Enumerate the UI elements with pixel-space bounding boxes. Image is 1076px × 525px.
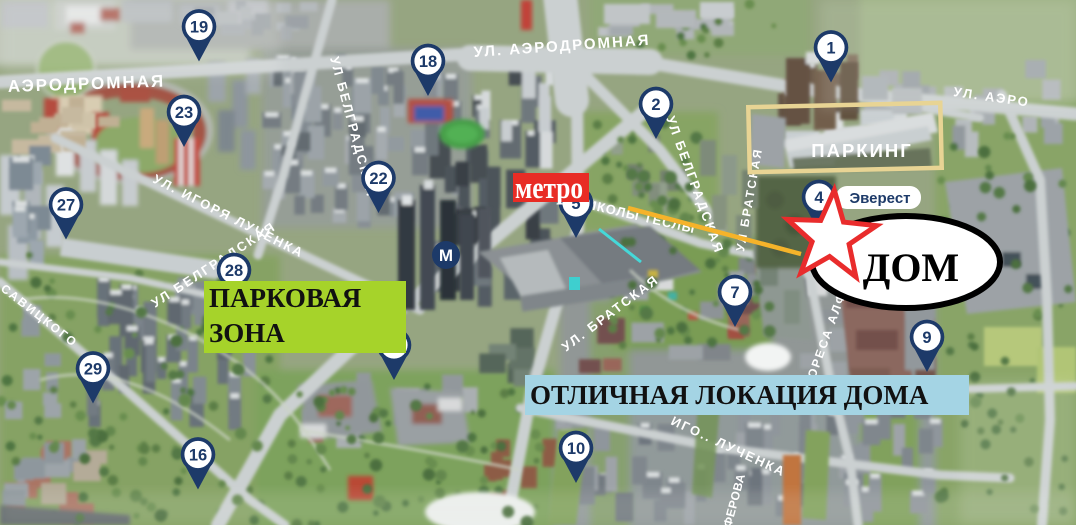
svg-text:10: 10 bbox=[567, 440, 585, 458]
svg-text:ПАРКИНГ: ПАРКИНГ bbox=[811, 140, 912, 161]
svg-text:23: 23 bbox=[175, 104, 193, 122]
svg-text:4: 4 bbox=[814, 189, 824, 207]
svg-text:ОТЛИЧНАЯ ЛОКАЦИЯ ДОМА: ОТЛИЧНАЯ ЛОКАЦИЯ ДОМА bbox=[530, 380, 929, 410]
svg-text:1: 1 bbox=[826, 39, 835, 57]
svg-text:19: 19 bbox=[190, 18, 208, 36]
svg-text:9: 9 bbox=[922, 329, 931, 347]
svg-text:М: М bbox=[439, 246, 453, 265]
svg-text:7: 7 bbox=[730, 284, 739, 302]
svg-text:16: 16 bbox=[189, 446, 207, 464]
svg-text:Эверест: Эверест bbox=[849, 190, 910, 207]
svg-text:22: 22 bbox=[369, 170, 387, 188]
svg-text:метро: метро bbox=[515, 170, 583, 205]
svg-text:2: 2 bbox=[651, 96, 660, 114]
svg-text:18: 18 bbox=[419, 53, 437, 71]
svg-text:ЗОНА: ЗОНА bbox=[209, 318, 285, 348]
svg-text:28: 28 bbox=[225, 262, 243, 280]
svg-text:29: 29 bbox=[84, 360, 102, 378]
svg-text:ПАРКОВАЯ: ПАРКОВАЯ bbox=[209, 283, 362, 313]
svg-text:27: 27 bbox=[57, 196, 75, 214]
svg-text:ДОМ: ДОМ bbox=[863, 245, 959, 290]
